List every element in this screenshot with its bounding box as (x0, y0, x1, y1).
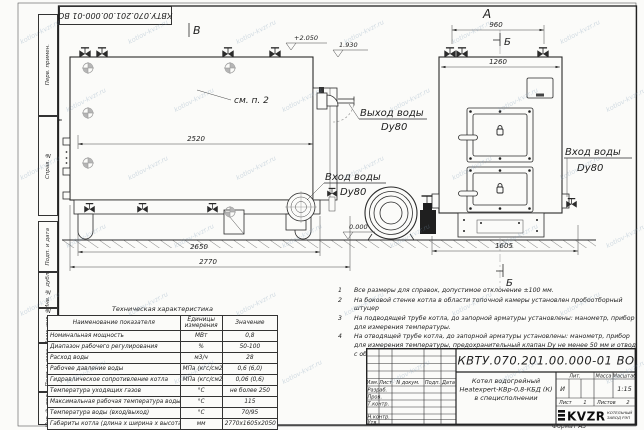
boiler-base (458, 213, 544, 237)
spec-value: м3/ч (180, 353, 222, 364)
spec-row: Расход водым3/ч28 (48, 353, 278, 364)
svg-text:Дата: Дата (441, 380, 455, 386)
elevation-mark-mid: 1.930 (333, 41, 368, 57)
svg-text:0.000: 0.000 (349, 223, 368, 231)
door-handle (459, 135, 478, 140)
ground-hatch (62, 240, 596, 248)
spec-name: Номинальная мощность (48, 331, 181, 342)
spec-value: не более 250 (222, 386, 277, 397)
spec-col-header: Значение (222, 316, 277, 331)
mass-label: Масса (596, 374, 612, 380)
frame-cell: Подп. и дата (38, 221, 58, 272)
svg-text:+2.050: +2.050 (294, 34, 318, 42)
valve-icon (269, 48, 280, 58)
spec-col-header: Единицы измерения (180, 316, 222, 331)
spec-row: Гидравлическое сопротивление котлаМПа (к… (48, 375, 278, 386)
svg-text:Лист: Лист (378, 380, 393, 386)
product-name-line3: в специсполнении (474, 394, 537, 402)
spec-table-grid: Наименование показателяЕдиницы измерения… (47, 315, 278, 430)
dim-side-base: 2650 (190, 243, 208, 251)
valve-icon (96, 48, 107, 58)
note-item: 3На подводящей трубе котла, до запорной … (338, 315, 636, 332)
top-stamp: КВТУ.070.201.00.000-01 ВО (59, 6, 172, 25)
sheet-value: 1 (583, 400, 586, 406)
spec-name: Температура воды (вход/выход) (48, 408, 181, 419)
sheets-label: Листов (596, 400, 616, 406)
spec-value: 0,06 (0,6) (222, 375, 277, 386)
signature-rows: Разраб. Пров. Т.контр. Н.контр. Утв. (368, 388, 390, 426)
spec-value: °С (180, 397, 222, 408)
spec-table-title: Техническая характеристика (47, 305, 278, 313)
dim-front-base: 1605 (495, 242, 513, 250)
spec-value: 50-100 (222, 342, 277, 353)
spec-row: Температура уходящих газов°Сне более 250 (48, 386, 278, 397)
note-item: 2На боковой стенке котла в области топоч… (338, 297, 636, 314)
spec-value: 28 (222, 353, 277, 364)
dim-front-valves: 960 (489, 21, 503, 29)
view-label-a: А (482, 7, 491, 21)
title-block: КВТУ.070.201.00.000-01 ВО Котел водогрей… (366, 348, 636, 425)
svg-text:Изм.: Изм. (367, 380, 379, 386)
company-name-line2: ЗАВОД РЭП (607, 415, 630, 420)
spec-row: Максимальная рабочая температура воды°С1… (48, 397, 278, 408)
dim-front-body: 1260 (489, 58, 507, 66)
spec-row: Рабочее давление водыМПа (кгс/см2)0,6 (6… (48, 364, 278, 375)
spec-name: Рабочее давление воды (48, 364, 181, 375)
spec-col-header: Наименование показателя (48, 316, 181, 331)
svg-text:Пров.: Пров. (368, 395, 383, 401)
sheets-value: 2 (626, 400, 629, 406)
drawing-sheet: 2520 2650 2770 960 1260 1605 (0, 0, 644, 430)
spec-value: 0,6 (6,0) (222, 364, 277, 375)
spec-value: °С (180, 408, 222, 419)
valve-icon (222, 48, 233, 58)
sheet-label: Лист (558, 400, 573, 406)
spec-header-row: Наименование показателяЕдиницы измерения… (48, 316, 278, 331)
svg-text:N докум.: N докум. (396, 380, 419, 386)
product-name-line2: Heatexpert-КВр-0,8-КБД (К) (459, 386, 552, 394)
scale-label: Масштаб (613, 374, 636, 380)
spec-row: Температура воды (вход/выход)°С70/95 (48, 408, 278, 419)
top-stamp-text: КВТУ.070.201.00.000-01 ВО (58, 11, 172, 20)
revision-header: Изм. Лист N докум. Подп. Дата (367, 380, 455, 386)
format-label: Формат А3 (552, 423, 586, 430)
svg-text:Вход воды: Вход воды (325, 172, 381, 183)
spec-value: МВт (180, 331, 222, 342)
view-label-v: В (193, 24, 201, 37)
svg-text:Т.контр.: Т.контр. (368, 402, 390, 408)
spec-row: Диапазон рабочего регулирования%50-100 (48, 342, 278, 353)
spec-value: 2770х1605х2050 (222, 419, 277, 430)
spec-name: Температура уходящих газов (48, 386, 181, 397)
lit-value: И (560, 385, 565, 393)
valve-icon (537, 48, 548, 58)
spec-value: МПа (кгс/см2) (180, 375, 222, 386)
front-inlet-callout: Вход воды Dy80 (564, 147, 632, 197)
outlet-callout: Выход воды Dy80 (349, 104, 427, 133)
lower-door (459, 167, 534, 212)
scale-value: 1:15 (617, 385, 632, 393)
dim-side-body: 2520 (187, 135, 205, 143)
lit-label: Лит. (568, 374, 581, 380)
spec-name: Максимальная рабочая температура воды (48, 397, 181, 408)
spec-value: °С (180, 386, 222, 397)
valve-icon (444, 48, 455, 58)
spec-row: Габариты котла (длина х ширина х высота)… (48, 419, 278, 430)
section-label-b-top: Б (504, 37, 511, 48)
note-item: 1Все размеры для справок, допустимое отк… (338, 287, 636, 296)
door-handle (459, 191, 478, 196)
company-logo-text: KVZR (567, 410, 606, 424)
svg-text:Утв.: Утв. (368, 420, 379, 425)
frame-cell: Инв. № дубл. (38, 272, 58, 308)
svg-text:Dy80: Dy80 (381, 122, 407, 133)
spec-value: 115 (222, 397, 277, 408)
spec-value: МПа (кгс/см2) (180, 364, 222, 375)
svg-text:Вход воды: Вход воды (565, 147, 621, 158)
spec-name: Расход воды (48, 353, 181, 364)
spec-value: 0,8 (222, 331, 277, 342)
svg-text:Подп.: Подп. (425, 380, 440, 386)
spec-name: Габариты котла (длина х ширина х высота) (48, 419, 181, 430)
doc-number: КВТУ.070.201.00.000-01 ВО (457, 354, 634, 368)
upper-door (459, 108, 534, 162)
svg-text:Dy80: Dy80 (577, 163, 603, 174)
spec-table: Техническая характеристика Наименование … (47, 305, 278, 430)
see-ref: см. п. 2 (234, 96, 269, 106)
svg-text:Разраб.: Разраб. (368, 388, 388, 394)
svg-text:1.930: 1.930 (339, 41, 358, 49)
svg-text:Dy80: Dy80 (340, 187, 366, 198)
frame-cell: Справ. № (38, 116, 58, 216)
spec-value: мм (180, 419, 222, 430)
spec-name: Гидравлическое сопротивление котла (48, 375, 181, 386)
spec-value: % (180, 342, 222, 353)
product-name-line1: Котел водогрейный (472, 377, 540, 385)
svg-text:Выход воды: Выход воды (360, 108, 424, 119)
dim-side-overall: 2770 (199, 258, 217, 266)
side-view (63, 48, 354, 239)
valve-icon (79, 48, 90, 58)
frame-cell: Перв. примен. (38, 14, 58, 116)
spec-value: 70/95 (222, 408, 277, 419)
spec-name: Диапазон рабочего регулирования (48, 342, 181, 353)
spec-row: Номинальная мощностьМВт0,8 (48, 331, 278, 342)
elevation-mark-top: +2.050 (286, 34, 327, 50)
valve-icon (456, 48, 467, 58)
